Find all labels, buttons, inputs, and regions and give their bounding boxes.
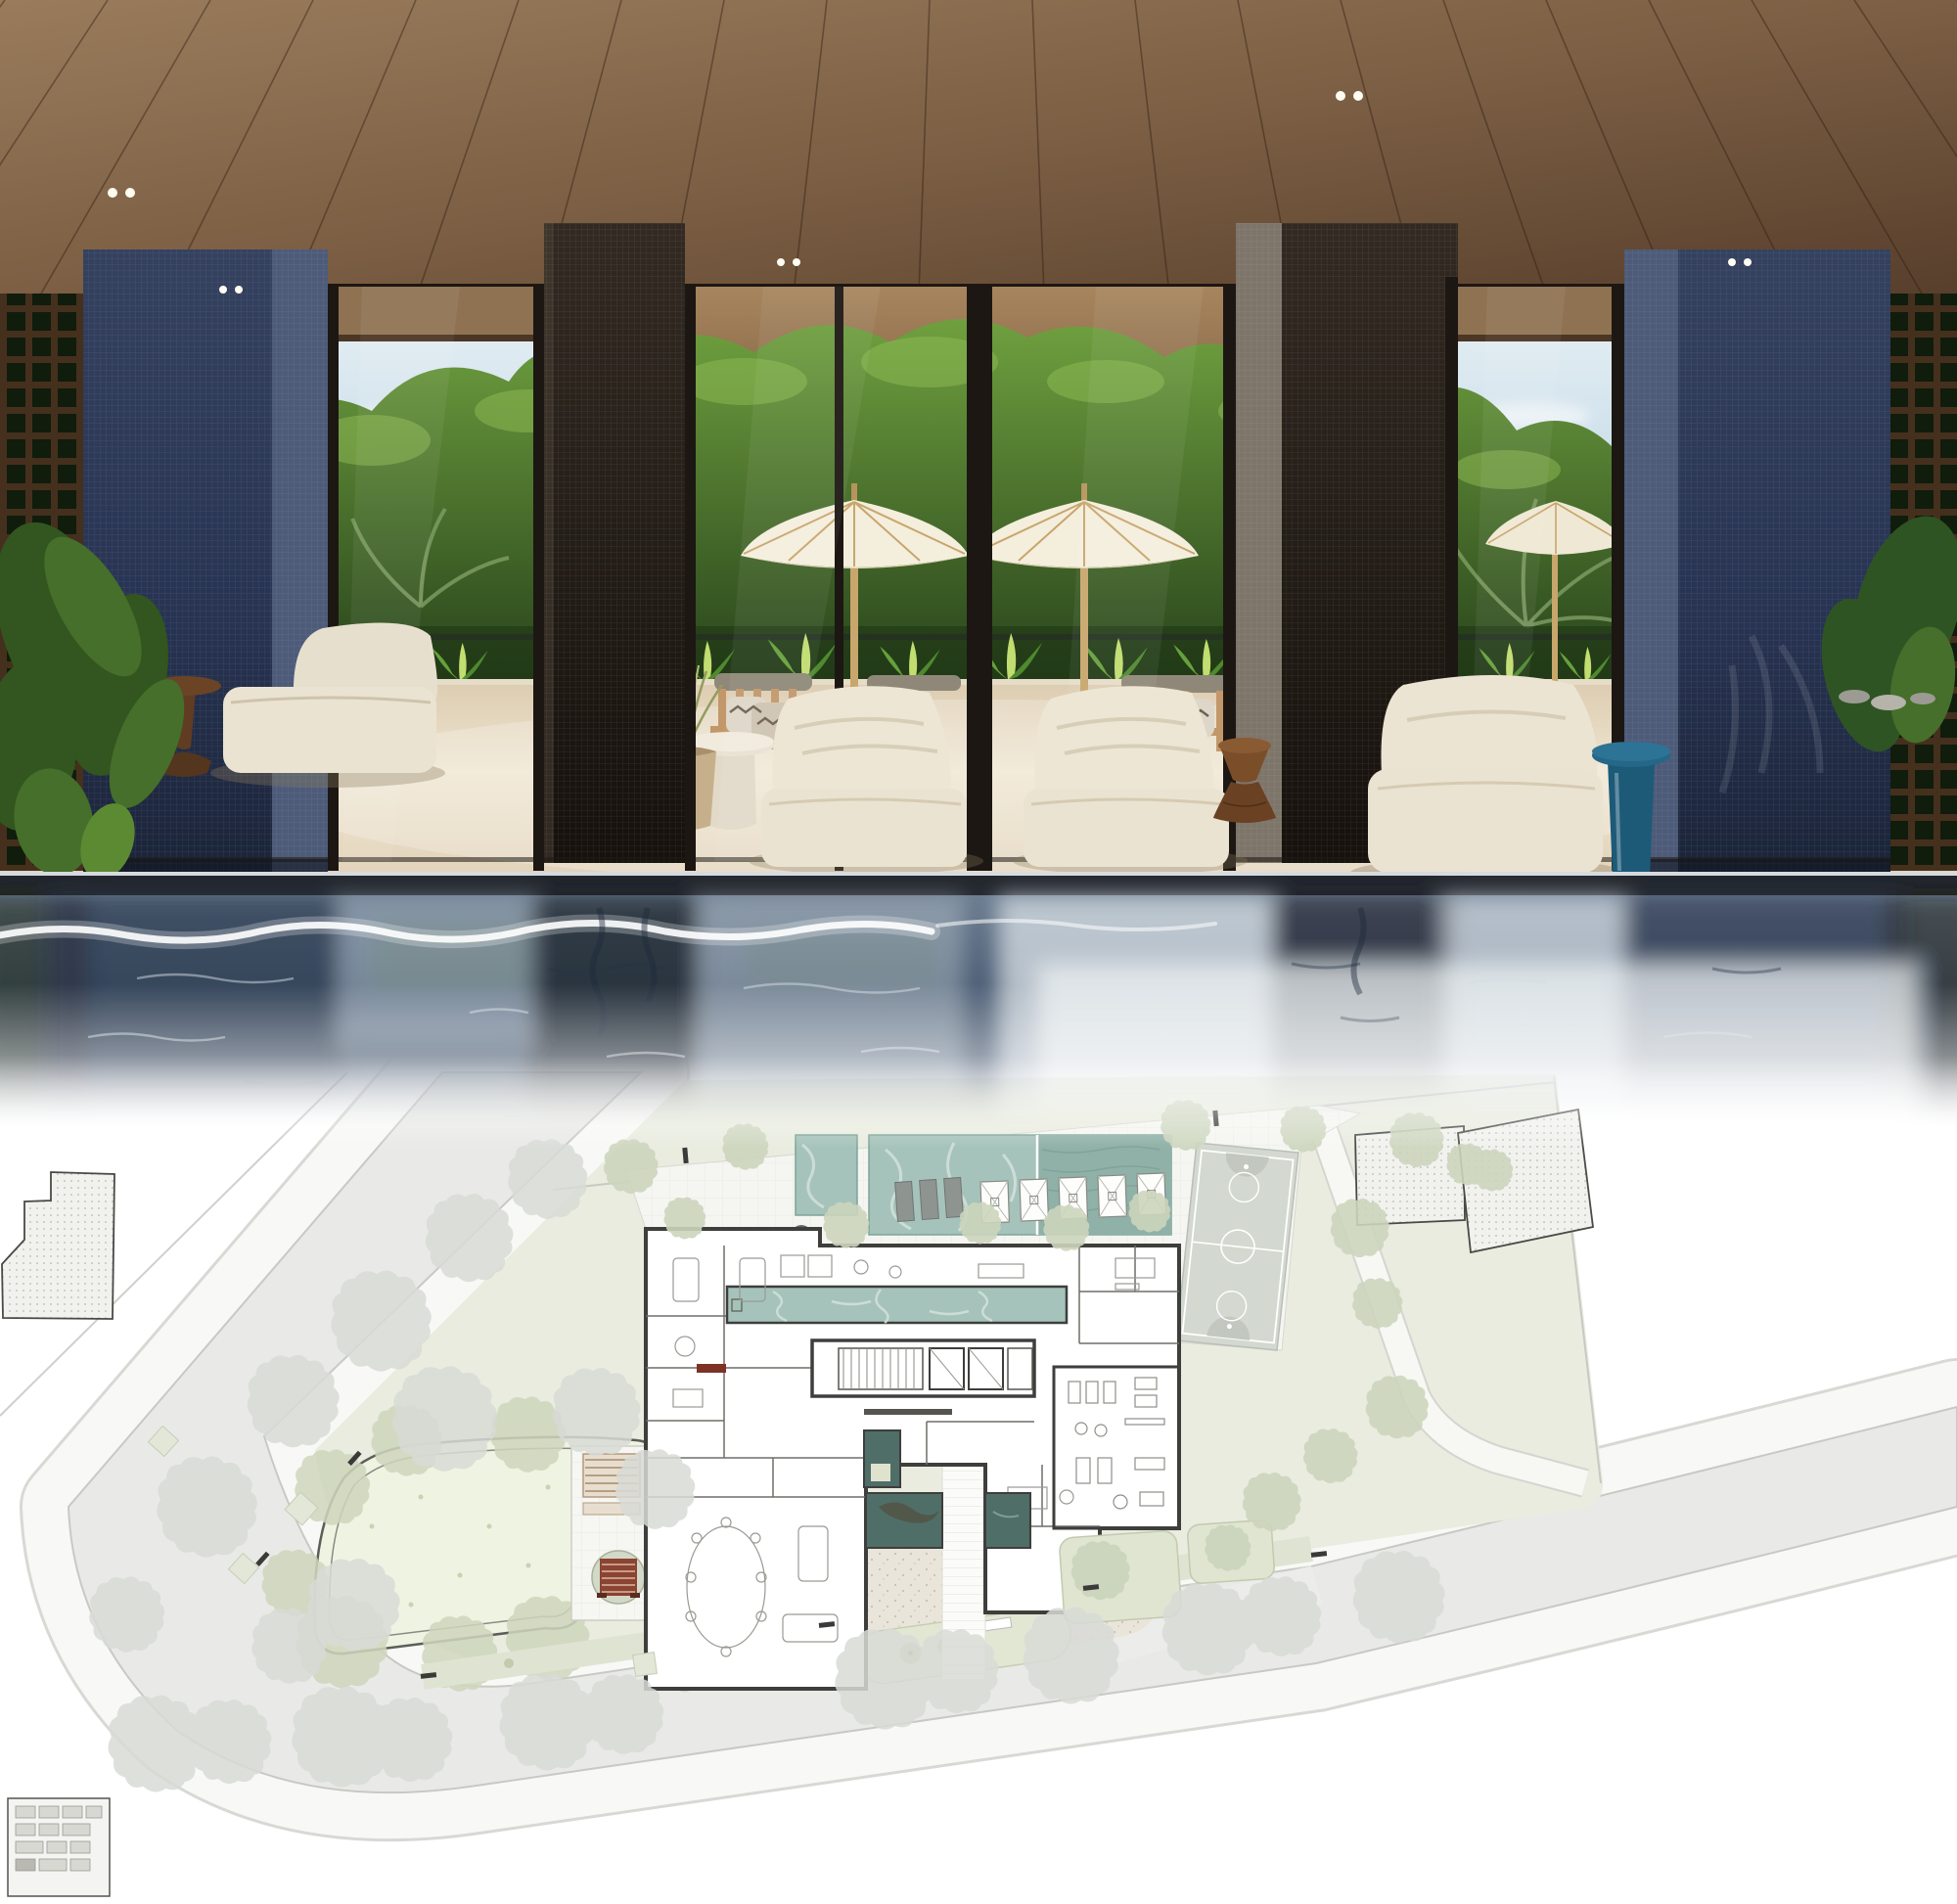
charcoal-pier-centre-left [544,223,685,863]
pool-coping [0,876,1957,897]
composite-image [0,0,1957,1904]
timber-ceiling [0,0,1957,294]
stair-core [812,1340,1034,1396]
architecture-presentation [0,0,1957,1904]
sun-loungers [895,1177,964,1221]
sports-court [1176,1143,1298,1350]
interior-courtyard [864,1430,900,1487]
bean-lounger-centre-right [1024,686,1229,867]
sauna-heater [697,1364,726,1373]
navy-pier-right [1624,249,1890,874]
render-view [0,0,1957,1145]
bean-lounger-centre-left [761,686,967,867]
lap-pool [727,1287,1067,1323]
bean-lounger-right [1368,675,1603,873]
site-plan [0,1055,1957,1904]
garden-bench [592,1551,645,1604]
utility-pad [8,1798,110,1896]
reception-desk [864,1409,952,1415]
